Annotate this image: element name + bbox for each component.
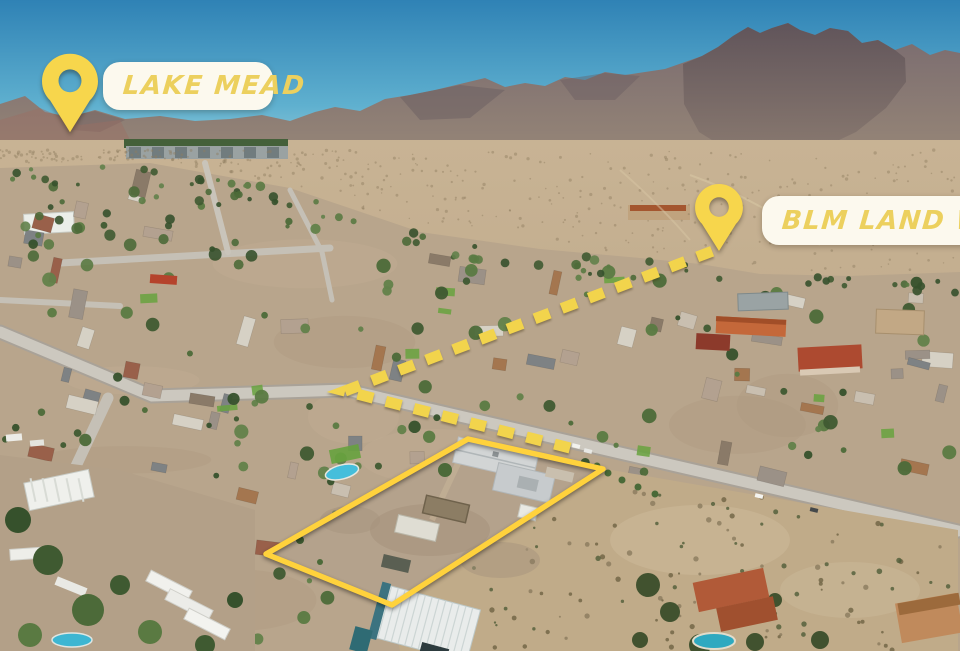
parcel-outline bbox=[266, 439, 603, 605]
aerial-photo: LAKE MEAD BLM LAND WITH bbox=[0, 0, 960, 651]
blm-land-label: BLM LAND WITH bbox=[762, 196, 960, 245]
route-dashed-path bbox=[345, 249, 718, 448]
lake-mead-pin-icon bbox=[42, 53, 98, 137]
lake-mead-label-text: LAKE MEAD bbox=[122, 71, 307, 101]
blm-land-label-text: BLM LAND WITH bbox=[781, 206, 960, 236]
blm-land-pin-icon bbox=[695, 184, 743, 255]
lake-mead-label: LAKE MEAD bbox=[103, 62, 273, 110]
